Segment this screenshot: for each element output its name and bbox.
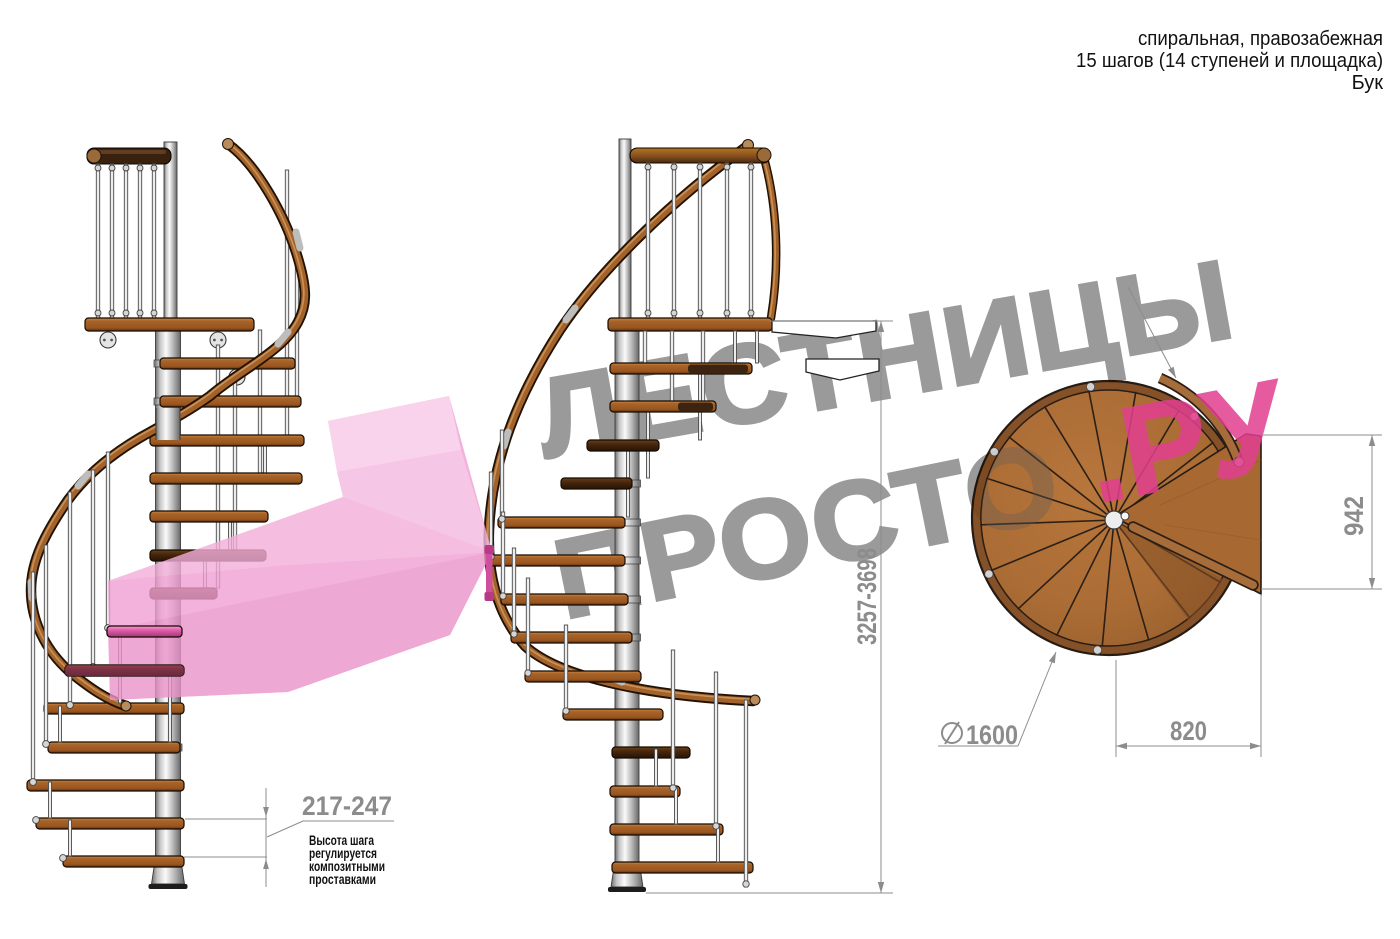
svg-text:217-247: 217-247 (302, 791, 392, 821)
svg-text:Бук: Бук (1352, 72, 1384, 94)
svg-text:проставками: проставками (309, 872, 376, 887)
svg-text:942: 942 (1339, 496, 1369, 536)
svg-text:спиральная, правозабежная: спиральная, правозабежная (1138, 28, 1383, 50)
svg-text:3257-3698: 3257-3698 (852, 548, 882, 645)
svg-text:15 шагов (14 ступеней и площад: 15 шагов (14 ступеней и площадка) (1076, 50, 1383, 72)
svg-text:1600: 1600 (966, 720, 1018, 750)
svg-text:820: 820 (1170, 716, 1207, 746)
